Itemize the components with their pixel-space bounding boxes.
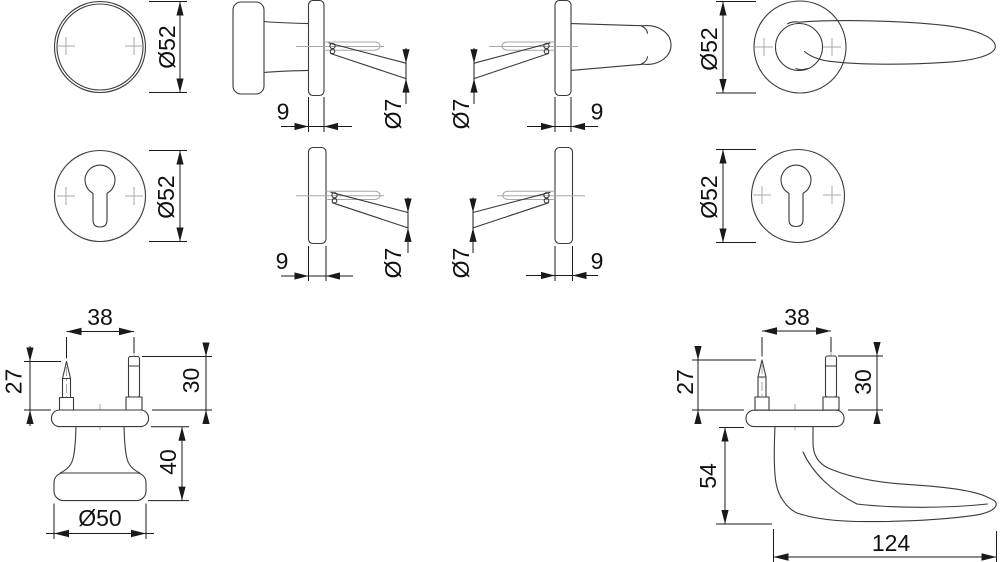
screw-hole-cross-right — [125, 37, 143, 55]
dim-label-lever-pin-spacing: 38 — [784, 304, 810, 330]
rose-inner-circle — [57, 4, 143, 90]
screw-hole-cross-right — [823, 38, 841, 56]
dim-label-knob-spindle: Ø7 — [380, 99, 406, 130]
dim-right-pin-height: 30 — [142, 343, 212, 425]
screw-hole-cross-left — [753, 186, 771, 204]
dim-label-escutcheon-diameter-right: Ø52 — [696, 175, 722, 218]
lever-boss — [776, 24, 823, 71]
lever-grip — [788, 21, 996, 65]
view-cylinder-rose-side-right: Ø7 9 — [448, 148, 603, 282]
rose-side — [309, 1, 325, 96]
screw-hole-cross-left — [755, 38, 773, 56]
screw-hole-cross-right — [823, 186, 841, 204]
dim-label-lever-right-pin: 30 — [850, 369, 876, 395]
view-cylinder-rose-front-left: Ø52 — [55, 151, 188, 242]
dim-escutcheon-thickness: 9 — [526, 246, 603, 281]
dim-handle-length: 124 — [774, 529, 997, 562]
dim-label-knob-height: 40 — [155, 449, 181, 475]
dim-label-knob-right-pin: 30 — [178, 368, 204, 394]
dim-screw-diameter: Ø7 — [448, 198, 477, 279]
dim-label-lever-length: 124 — [872, 530, 911, 556]
fixing-screw — [474, 43, 550, 79]
view-lever-side: Ø7 9 — [448, 1, 671, 133]
view-knob-side: Ø7 9 — [233, 1, 410, 133]
lever-grip-end — [642, 26, 672, 65]
lever-neck — [571, 24, 642, 71]
view-cylinder-rose-side-left: Ø7 9 — [276, 148, 412, 282]
knob-neck — [60, 427, 140, 473]
dim-rose-diameter: Ø52 — [696, 2, 756, 94]
dim-label-escutcheon-diameter-left: Ø52 — [153, 175, 179, 218]
rose-side — [555, 1, 571, 96]
dim-label-lever-spindle: Ø7 — [448, 99, 474, 130]
view-knob-rose-front: Ø52 — [55, 2, 188, 93]
escutcheon-circle — [752, 150, 845, 243]
dim-label-screw-diameter-right: Ø7 — [448, 248, 474, 279]
knob-head — [54, 473, 146, 501]
dim-escutcheon-diameter: Ø52 — [149, 151, 187, 242]
dim-pin-spacing: 38 — [67, 304, 135, 358]
right-fixing-stud — [126, 357, 142, 411]
dim-label-lever-rose-thickness: 9 — [591, 99, 604, 125]
dim-label-lever-drop: 54 — [695, 463, 721, 489]
dim-rose-thickness: 9 — [277, 97, 352, 132]
knob-head-side — [233, 2, 264, 94]
view-knob-elevation: 38 27 30 40 Ø50 — [1, 304, 213, 539]
fixing-screw — [331, 192, 408, 228]
dim-left-pin-height: 27 — [672, 346, 756, 424]
dim-escutcheon-thickness: 9 — [276, 246, 353, 281]
rose-outer-circle — [55, 2, 146, 93]
dim-pin-spacing: 38 — [762, 304, 831, 356]
screw-hole-cross-left — [57, 187, 75, 205]
dim-rose-diameter: Ø52 — [149, 2, 187, 93]
dim-label-escutcheon-thickness-left: 9 — [276, 248, 289, 274]
dim-label-screw-diameter-left: Ø7 — [380, 248, 406, 279]
cylinder-keyhole-cutout — [85, 165, 115, 227]
dim-knob-height: 40 — [148, 427, 189, 501]
dim-escutcheon-diameter: Ø52 — [696, 150, 756, 243]
dim-spindle-diameter: Ø7 — [448, 48, 478, 129]
door-hardware-drawing: Ø52 Ø7 9 — [0, 0, 1000, 562]
screw-hole-cross-right — [125, 187, 143, 205]
lever-grip-lower-joint — [796, 69, 807, 70]
dim-label-knob-diameter: Ø50 — [78, 505, 121, 531]
dim-rose-thickness: 9 — [527, 97, 603, 132]
view-cylinder-rose-front-right: Ø52 — [696, 150, 845, 243]
lever-handle-profile — [774, 427, 996, 522]
fixing-screw — [473, 192, 550, 228]
dim-label-knob-left-pin: 27 — [1, 369, 27, 395]
right-fixing-stud — [823, 356, 839, 410]
dim-label-knob-pin-spacing: 38 — [87, 304, 113, 330]
dim-knob-diameter: Ø50 — [46, 504, 154, 540]
dim-right-pin-height: 30 — [838, 342, 883, 424]
dim-label-knob-rose-thickness: 9 — [277, 99, 290, 125]
dim-handle-drop: 54 — [695, 428, 772, 525]
screw-hole-cross-left — [57, 37, 75, 55]
rose-plate — [52, 410, 149, 427]
cylinder-keyhole-cutout — [781, 165, 811, 226]
view-lever-front: Ø52 — [696, 1, 995, 93]
dim-label-lever-left-pin: 27 — [672, 369, 698, 395]
view-lever-elevation: 38 27 30 54 124 — [672, 304, 997, 562]
dim-label-escutcheon-thickness-right: 9 — [591, 248, 604, 274]
rose-plate — [746, 410, 844, 426]
dim-label-knob-rose-diameter: Ø52 — [154, 25, 180, 68]
dim-label-lever-rose-diameter: Ø52 — [696, 27, 722, 70]
technical-drawing-canvas: Ø52 Ø7 9 — [0, 0, 1000, 562]
fixing-screw — [329, 43, 406, 79]
